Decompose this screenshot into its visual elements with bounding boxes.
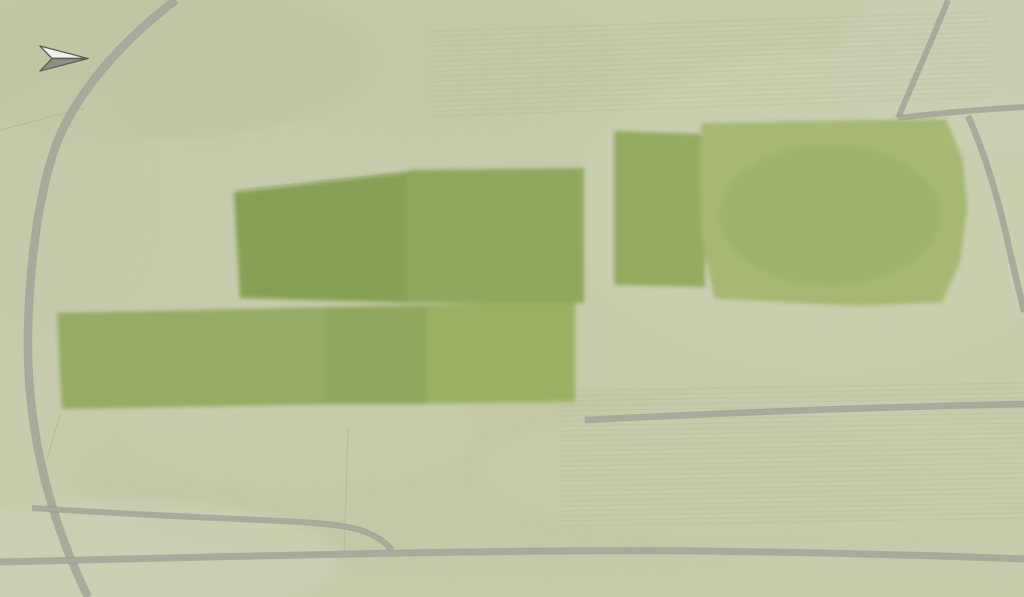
site-plan-map — [0, 0, 1024, 597]
